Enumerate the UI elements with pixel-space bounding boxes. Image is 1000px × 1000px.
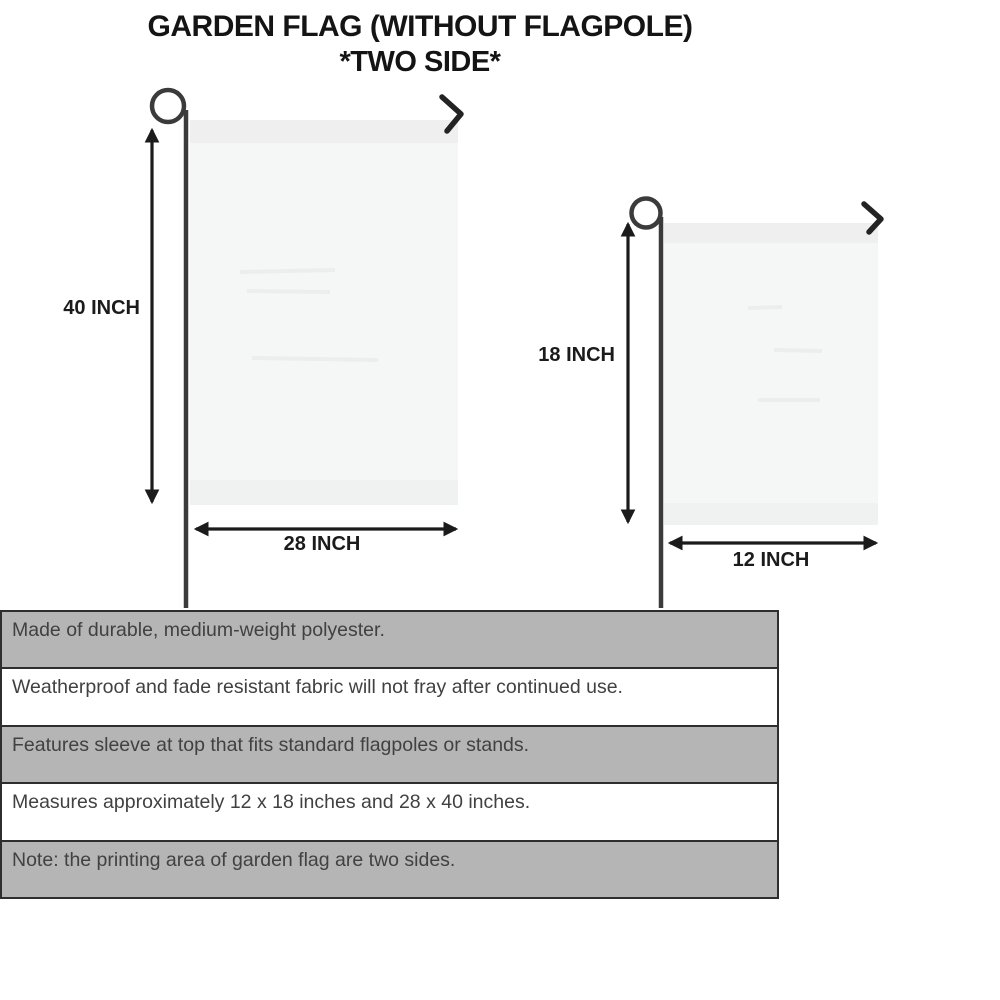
feature-text: Made of durable, medium-weight polyester…	[12, 619, 385, 641]
feature-text: Features sleeve at top that fits standar…	[12, 734, 529, 756]
small-flag-sleeve	[664, 223, 878, 243]
feature-text: Measures approximately 12 x 18 inches an…	[12, 791, 530, 813]
large-flag-stand	[152, 90, 186, 608]
large-flag-height-label: 40 INCH	[56, 297, 140, 320]
large-flag-width-label: 28 INCH	[262, 533, 382, 556]
small-flag-stand	[632, 199, 662, 609]
feature-row-note: Note: the printing area of garden flag a…	[2, 842, 777, 897]
large-flag-sleeve	[190, 120, 458, 143]
small-flag-group	[628, 199, 881, 609]
feature-text: Weatherproof and fade resistant fabric w…	[12, 676, 623, 698]
infographic-canvas: GARDEN FLAG (WITHOUT FLAGPOLE) *TWO SIDE…	[0, 0, 1000, 1000]
large-flag-fabric	[190, 120, 458, 505]
small-flag-width-label: 12 INCH	[711, 549, 831, 572]
feature-row-weatherproof: Weatherproof and fade resistant fabric w…	[2, 669, 777, 726]
large-flag-hem	[190, 480, 458, 505]
feature-row-measurements: Measures approximately 12 x 18 inches an…	[2, 784, 777, 841]
stand-loop	[632, 199, 661, 228]
feature-text: Note: the printing area of garden flag a…	[12, 849, 455, 871]
small-flag-fabric	[664, 223, 878, 525]
large-flag-group	[152, 90, 461, 608]
features-table: Made of durable, medium-weight polyester…	[0, 610, 779, 899]
small-flag-hem	[664, 503, 878, 525]
flag-diagram	[0, 0, 1000, 620]
feature-row-sleeve: Features sleeve at top that fits standar…	[2, 727, 777, 784]
small-flag-height-label: 18 INCH	[531, 344, 615, 367]
stand-loop	[152, 90, 184, 122]
feature-row-material: Made of durable, medium-weight polyester…	[2, 612, 777, 669]
